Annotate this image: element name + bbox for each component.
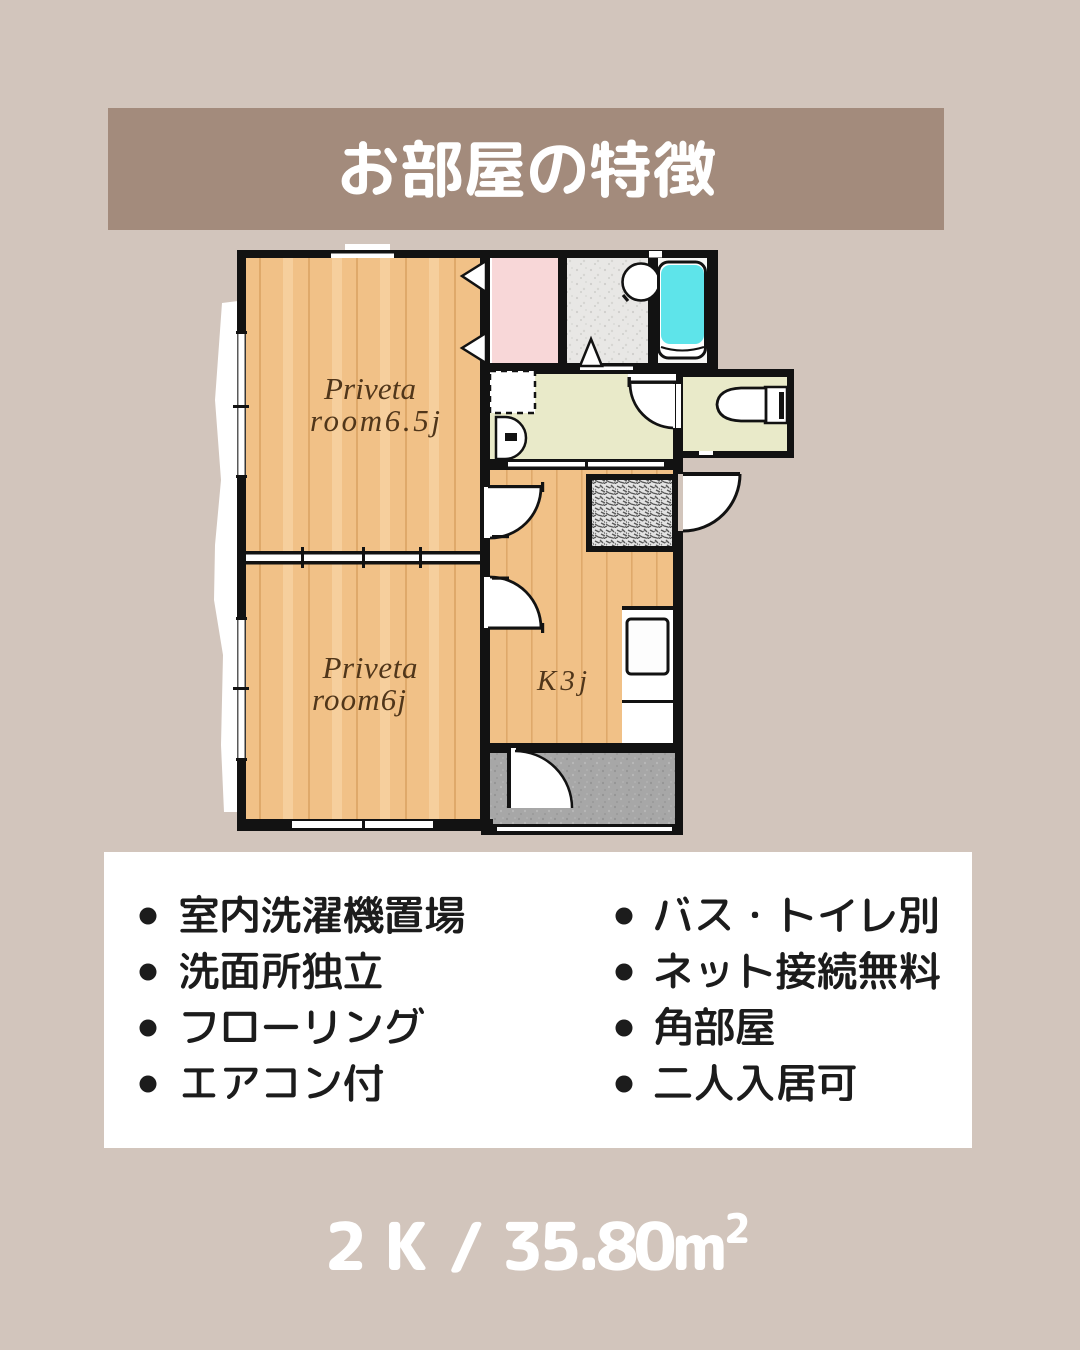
svg-text:room6j: room6j — [312, 682, 406, 717]
svg-text:Priveta: Priveta — [323, 371, 416, 406]
svg-text:room6.5j: room6.5j — [310, 403, 440, 438]
svg-text:Priveta: Priveta — [322, 650, 418, 685]
svg-text:K3j: K3j — [536, 665, 587, 697]
